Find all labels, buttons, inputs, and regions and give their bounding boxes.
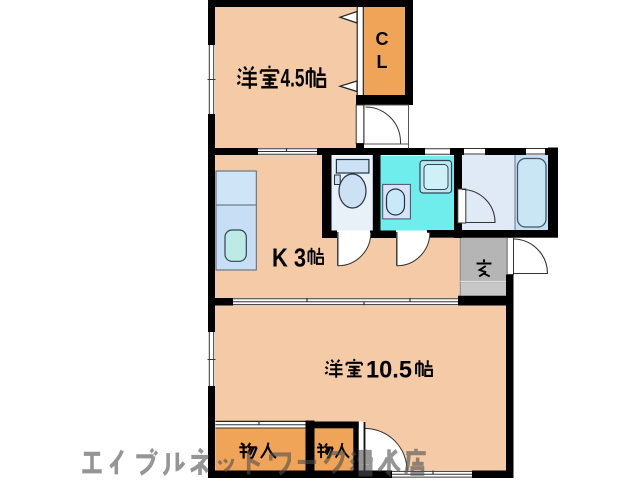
svg-text:L: L [377, 52, 388, 72]
svg-text:C: C [376, 29, 389, 49]
svg-text:4.5: 4.5 [281, 65, 305, 93]
svg-text:K 3: K 3 [272, 243, 306, 273]
svg-text:10.5: 10.5 [366, 357, 412, 384]
